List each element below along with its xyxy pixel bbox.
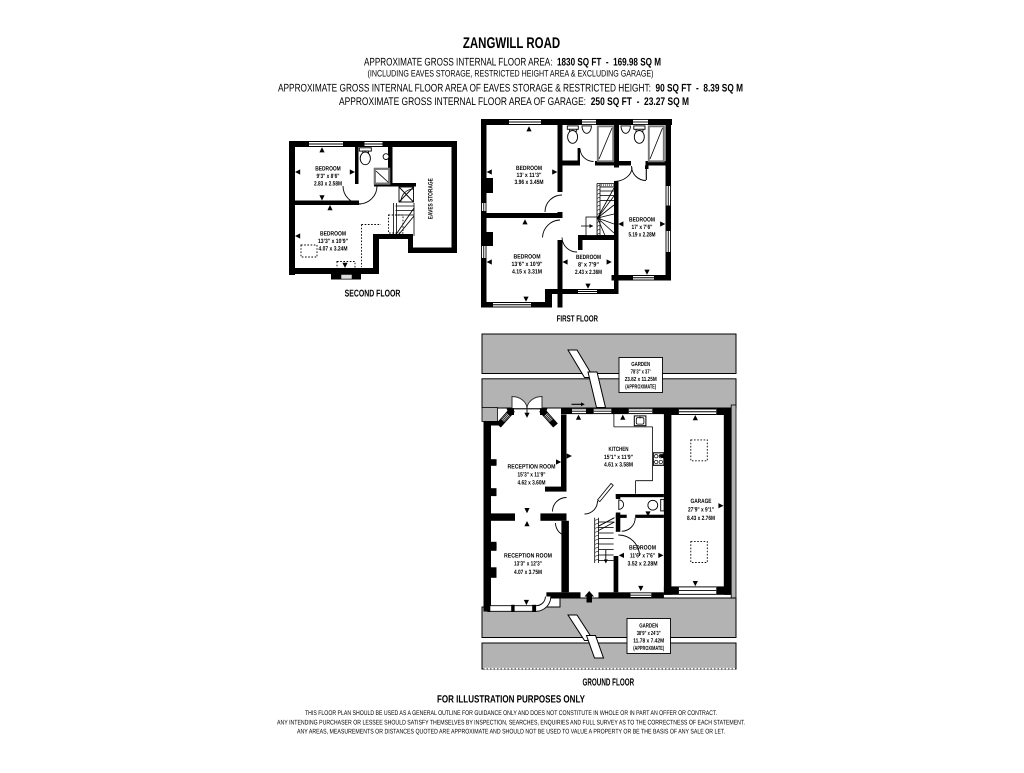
svg-text:ZANGWILL ROAD: ZANGWILL ROAD [463,35,560,52]
svg-text:GROUND FLOOR: GROUND FLOOR [582,677,634,688]
svg-text:ANY INTENDING PURCHASER OR LES: ANY INTENDING PURCHASER OR LESSEE SHOULD… [277,720,745,727]
svg-text:BEDROOM: BEDROOM [315,166,341,173]
svg-text:13’ x 11’3": 13’ x 11’3" [517,172,542,179]
svg-text:BEDROOM: BEDROOM [629,217,655,224]
svg-text:2.83 x 2.58M: 2.83 x 2.58M [314,180,342,187]
svg-text:4.07 x 3.24M: 4.07 x 3.24M [319,246,348,253]
svg-text:15’3" x 11’9": 15’3" x 11’9" [518,472,546,479]
svg-text:APPROXIMATE GROSS INTERNAL FLO: APPROXIMATE GROSS INTERNAL FLOOR AREA OF… [339,96,689,108]
svg-text:GARDEN: GARDEN [631,361,650,368]
svg-text:38’9" x 24’3": 38’9" x 24’3" [637,630,661,637]
svg-text:EAVES STORAGE: EAVES STORAGE [427,178,434,220]
svg-text:ANY AREAS, MEASUREMENTS OR DIS: ANY AREAS, MEASUREMENTS OR DISTANCES QUO… [297,729,725,736]
svg-text:(APPROXIMATE): (APPROXIMATE) [625,384,656,391]
svg-text:BEDROOM: BEDROOM [320,231,346,238]
svg-text:27’9" x 9’1": 27’9" x 9’1" [688,507,714,514]
svg-text:APPROXIMATE GROSS INTERNAL FLO: APPROXIMATE GROSS INTERNAL FLOOR AREA: 1… [364,57,661,69]
svg-text:78’3" x 37’: 78’3" x 37’ [631,369,651,376]
svg-text:THIS FLOOR PLAN SHOULD BE USED: THIS FLOOR PLAN SHOULD BE USED AS A GENE… [305,710,717,717]
svg-text:GARAGE: GARAGE [691,498,712,505]
svg-text:2.43 x 2.36M: 2.43 x 2.36M [575,269,602,276]
svg-text:(APPROXIMATE): (APPROXIMATE) [633,645,664,652]
svg-text:BEDROOM: BEDROOM [516,165,542,172]
svg-text:4.61 x 3.58M: 4.61 x 3.58M [604,462,633,469]
svg-text:9’3" x 8’6": 9’3" x 8’6" [317,173,340,180]
svg-text:APPROXIMATE GROSS INTERNAL FLO: APPROXIMATE GROSS INTERNAL FLOOR AREA OF… [278,83,743,95]
svg-text:3.96 x 3.45M: 3.96 x 3.45M [515,179,544,186]
svg-text:RECEPTION ROOM: RECEPTION ROOM [508,464,556,471]
svg-text:BEDROOM: BEDROOM [514,254,541,261]
svg-text:BEDROOM: BEDROOM [576,254,601,261]
svg-text:17’ x 7’6": 17’ x 7’6" [632,224,653,231]
svg-text:3.52 x 2.28M: 3.52 x 2.28M [628,561,658,568]
svg-text:RECEPTION ROOM: RECEPTION ROOM [504,553,552,560]
svg-text:4.15 x 3.31M: 4.15 x 3.31M [512,269,542,276]
svg-text:BEDROOM: BEDROOM [629,545,656,552]
svg-text:5.19 x 2.28M: 5.19 x 2.28M [629,232,656,239]
svg-text:13’3" x 12’3": 13’3" x 12’3" [514,561,542,568]
svg-text:4.62 x 3.60M: 4.62 x 3.60M [518,480,546,487]
svg-text:15’1" x 11’9": 15’1" x 11’9" [604,454,633,461]
svg-text:GARDEN: GARDEN [639,623,658,630]
svg-text:11’6" x 7’6": 11’6" x 7’6" [630,553,655,560]
svg-text:8.43 x 2.76M: 8.43 x 2.76M [687,515,715,522]
svg-text:FOR ILLUSTRATION PURPOSES ONLY: FOR ILLUSTRATION PURPOSES ONLY [437,694,585,706]
svg-text:13’3" x 10’9": 13’3" x 10’9" [318,238,348,245]
svg-text:SECOND FLOOR: SECOND FLOOR [345,289,401,300]
svg-text:8’ x 7’9": 8’ x 7’9" [578,262,599,269]
svg-text:13’6" x 10’9": 13’6" x 10’9" [512,261,543,268]
svg-text:FIRST FLOOR: FIRST FLOOR [557,314,599,324]
svg-text:(INCLUDING EAVES STORAGE, REST: (INCLUDING EAVES STORAGE, RESTRICTED HEI… [368,69,654,79]
svg-text:4.07 x 3.75M: 4.07 x 3.75M [514,569,542,576]
svg-text:23.82 x 11.25M: 23.82 x 11.25M [625,376,657,383]
svg-text:KITCHEN: KITCHEN [609,446,629,453]
svg-text:11.78 x 7.42M: 11.78 x 7.42M [633,638,664,645]
